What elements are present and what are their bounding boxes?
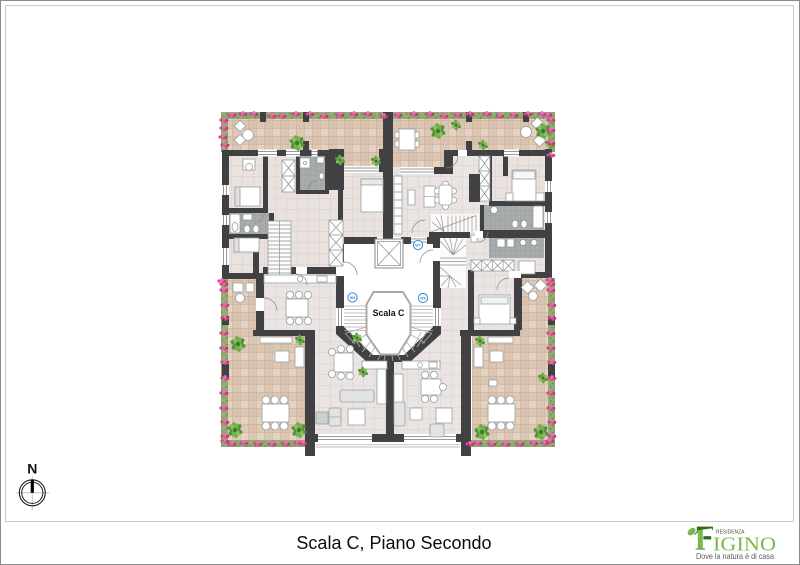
svg-text:W5: W5: [350, 296, 355, 300]
svg-text:Dove la natura è di casa: Dove la natura è di casa: [696, 551, 774, 561]
svg-text:Scala C: Scala C: [373, 308, 405, 318]
svg-text:N: N: [27, 461, 37, 477]
svg-text:W6: W6: [420, 296, 425, 300]
svg-text:W7: W7: [415, 243, 420, 247]
